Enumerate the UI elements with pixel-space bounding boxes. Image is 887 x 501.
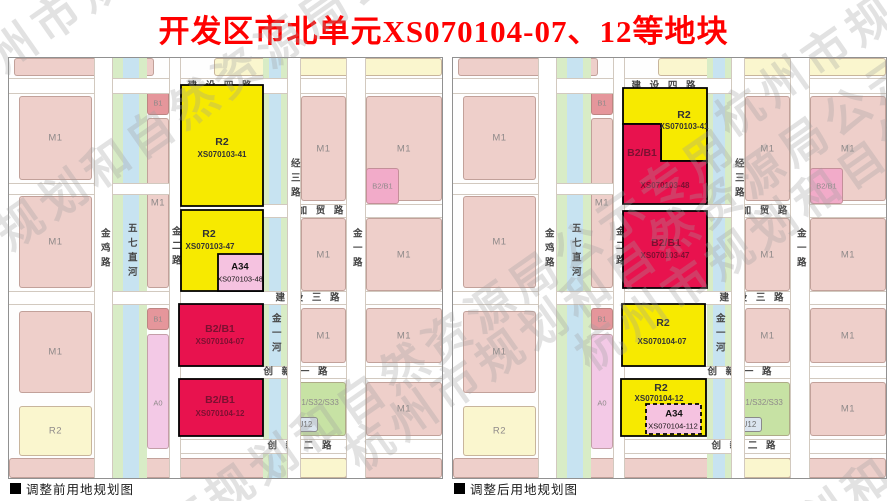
parcel-label-xs070104-07: B2/B1 [205,324,235,335]
road-left-link-rd [9,183,169,195]
parcel-m1-center-col [147,118,169,288]
road-jing-3-rd [731,58,745,478]
legend-square [10,483,21,494]
road-jinji-rd [94,58,113,478]
parcel-label-xs070103-41: R2 [215,137,228,148]
parcel-m1-center-col [591,118,613,288]
parcel-label-xs070103-48: A34 [231,262,248,272]
parcel-m1-right-3 [810,308,886,363]
parcel-xs070104-12 [179,379,263,436]
road-jin-1-rd [346,58,366,478]
road-jianshe-4-rd [9,78,442,94]
parcel-label-xs070103-41: R2 [677,110,690,121]
parcel-b2b1-small [810,168,843,204]
parcel-a0-col [591,334,613,449]
parcel-xs070103-48 [623,124,707,204]
legend-label: 调整前用地规划图 [26,479,134,498]
parcel-b1-upper [147,91,169,115]
parcel-strip-bottom-pink [9,458,442,478]
parcel-strip-top-yellow [658,58,886,76]
parcel-r2-bottomleft [19,406,92,456]
parcel-m1-mid-2 [745,218,790,291]
parcel-m1-right-2 [366,218,442,291]
parcel-xs070104-12 [621,379,706,436]
waterway-band-0 [113,58,123,478]
road-jin-2-rd [169,58,181,478]
parcel-xs070104-07 [622,304,705,366]
parcel-m1-right-4 [366,382,442,436]
road-jin-1-rd [790,58,810,478]
parcel-xs070103-47 [181,210,263,291]
parcel-m1-right-2 [810,218,886,291]
parcel-m1-mid-3 [745,308,790,363]
parcel-label-xs070103-48: XS070103-48 [641,182,690,190]
parcel-label-xs070104-07: XS070104-07 [196,338,245,346]
road-jin-2-rd [613,58,625,478]
parcel-strip-top-yellow [214,58,442,76]
parcel-m1-mid-upper [745,96,790,201]
road-chuangxin-2-rd [613,439,886,454]
parcel-m1-left-low [463,311,536,393]
parcel-b1-lower [591,308,613,330]
parcel-label-xs070103-47: B2/B1 [651,238,681,249]
parcel-b1-lower [147,308,169,330]
parcel-label-xs070104-07: XS070104-07 [638,338,687,346]
parcel-label-xs070104-112: XS070104-112 [648,422,698,430]
parcel-label-xs070104-112: A34 [665,409,682,419]
parcel-label-xs070103-47: XS070103-47 [186,243,235,251]
parcel-label-xs070104-12: XS070104-12 [635,395,684,403]
parcel-label-xs070103-48: XS070103-48 [217,275,263,283]
parcel-m1-right-3 [366,308,442,363]
page-title: 开发区市北单元XS070104-07、12等地块 [0,6,887,51]
road-chuangxin-1-rd [613,366,886,379]
parcel-label-xs070103-48: B2/B1 [627,148,657,159]
legend-label: 调整后用地规划图 [470,479,578,498]
parcel-m1-left-low [19,311,92,393]
map-after-adjustment: M1M1M1R2B1M1B1A0M1M1B2/B1M1M1M1M1G1/S32/… [452,57,887,479]
waterway-band-1 [567,58,583,478]
legend-before: 调整前用地规划图 [10,479,134,498]
parcel-a0-col [147,334,169,449]
parcel-m1-mid-upper [301,96,346,201]
road-left-link-rd [453,183,613,195]
road-chuangxin-2-rd [169,439,442,454]
legend-after: 调整后用地规划图 [454,479,578,498]
parcel-m1-right-4 [810,382,886,436]
parcel-label-xs070103-47: R2 [202,229,215,240]
parcel-m1-topleft [463,96,536,180]
waterway-band-0 [557,58,567,478]
parcel-xs070104-112 [646,404,701,434]
parcel-xs070103-48 [218,254,263,291]
waterway-band-4 [269,58,281,478]
parcel-label-xs070104-12: R2 [654,383,667,394]
parcel-m1-left-mid [463,196,536,288]
parcel-label-xs070103-41: XS070103-41 [198,151,247,159]
parcel-label-xs070103-41: XS070103-41 [660,123,709,131]
road-jianshe-3-rd [9,291,442,305]
road-chuangxin-1-rd [169,366,442,379]
map-before-adjustment: M1M1M1R2B1M1B1A0M1M1B2/B1M1M1M1M1G1/S32/… [8,57,443,479]
parcel-label-xs070103-47: XS070103-47 [641,252,690,260]
parcel-m1-mid-2 [301,218,346,291]
parcel-strip-bottom-pink [453,458,886,478]
road-jinji-rd [538,58,557,478]
parcel-label-xs070104-07: R2 [656,318,669,329]
road-jianshe-4-rd [453,78,886,94]
parcel-m1-left-mid [19,196,92,288]
parcel-label-xs070104-12: XS070104-12 [196,410,245,418]
parcel-xs070103-41 [181,85,263,206]
waterway-band-4 [713,58,725,478]
parcel-b2b1-small [366,168,399,204]
waterway-band-2 [139,58,147,478]
waterway-band-1 [123,58,139,478]
parcel-m1-topleft [19,96,92,180]
road-jianshe-3-rd [453,291,886,305]
parcel-xs070103-47 [623,211,707,288]
parcel-xs070104-07 [179,304,263,366]
parcel-m1-mid-3 [301,308,346,363]
parcel-label-xs070104-12: B2/B1 [205,395,235,406]
planning-bulletin: 开发区市北单元XS070104-07、12等地块 M1M1M1R2B1M1B1A… [0,0,887,501]
parcel-xs070103-41 [623,88,707,161]
legend-square [454,483,465,494]
parcel-b1-upper [591,91,613,115]
road-jing-3-rd [287,58,301,478]
waterway-band-2 [583,58,591,478]
parcel-r2-bottomleft [463,406,536,456]
